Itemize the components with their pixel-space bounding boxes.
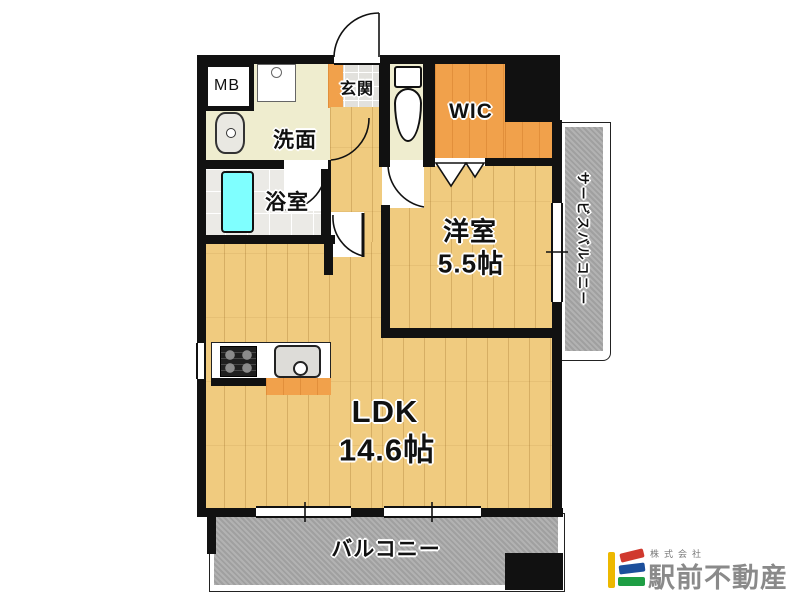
label-ldk-size: 14.6帖 [339,425,435,470]
door-arc-ldk [333,215,363,256]
label-balcony: バルコニー [331,533,441,563]
label-wic: WIC [449,100,493,124]
label-meter-box: MB [214,77,240,95]
plan-annotations [0,0,800,600]
label-entrance: 玄関 [340,75,374,99]
company-logo: 株式会社 駅前不動産 [598,543,793,595]
door-arc-toilet [388,164,424,207]
logo-mark-top [619,548,644,563]
folding-door-icon-2 [466,163,484,177]
label-service-balcony: サービスバルコニー [575,172,594,307]
label-western-room-size: 5.5帖 [438,244,504,281]
label-bathroom: 浴室 [265,186,309,216]
logo-company-name: 駅前不動産 [648,556,788,595]
floor-plan: MB 玄関 洗面 浴室 WIC 洋室 5.5帖 LDK 14.6帖 バルコニー … [0,0,800,600]
door-arc-entrance [334,13,379,57]
door-arc-washroom [331,118,369,160]
logo-mark-bar [608,552,615,588]
folding-door-icon-1 [436,163,466,186]
logo-mark-middle [619,562,646,574]
logo-mark-bottom [618,577,645,586]
label-washroom: 洗面 [273,124,317,154]
